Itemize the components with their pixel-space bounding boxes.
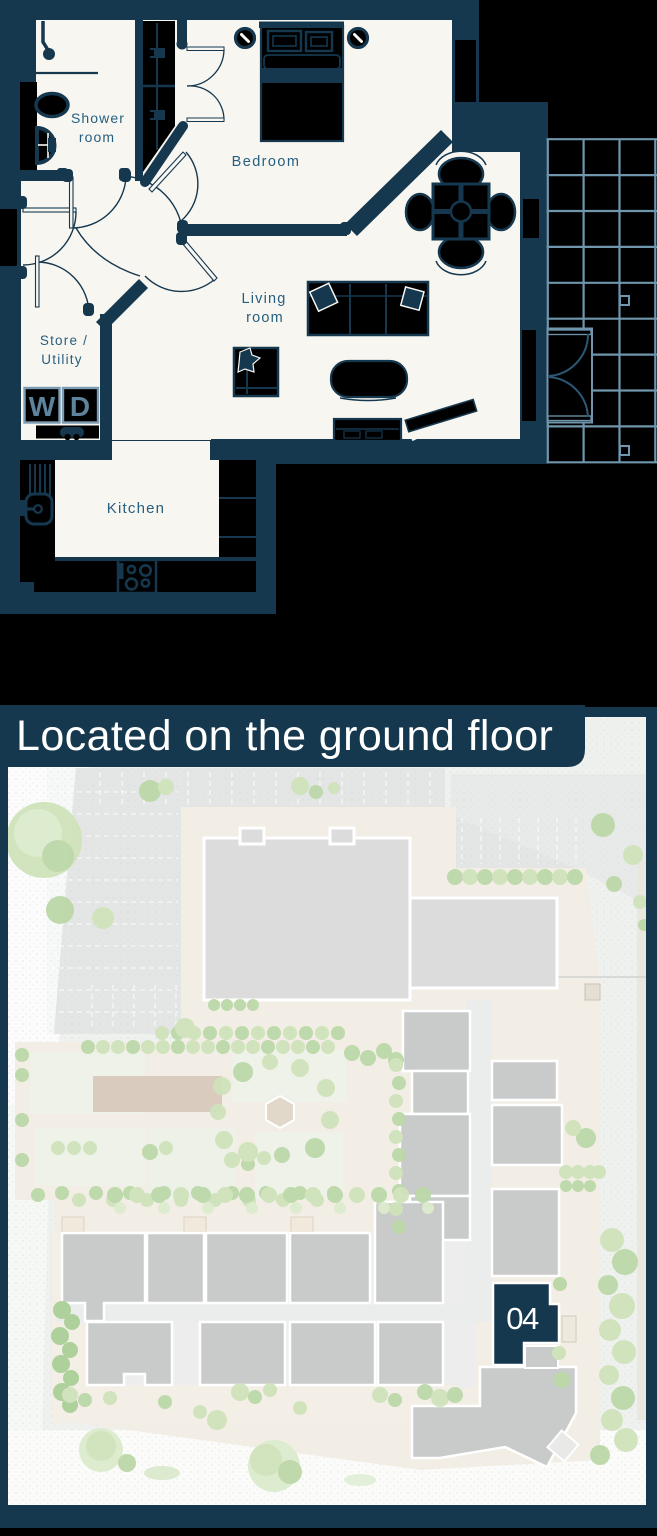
svg-text:04: 04	[506, 1301, 539, 1336]
svg-text:Bedroom: Bedroom	[232, 154, 301, 170]
svg-text:room: room	[246, 310, 284, 326]
svg-text:D: D	[70, 391, 90, 422]
svg-text:room: room	[79, 129, 115, 145]
svg-text:Shower: Shower	[71, 110, 125, 126]
svg-text:Store /: Store /	[40, 333, 88, 348]
svg-text:Living: Living	[241, 291, 286, 307]
svg-text:Utility: Utility	[41, 352, 82, 367]
svg-text:Located on the ground floor: Located on the ground floor	[16, 712, 553, 760]
svg-text:Kitchen: Kitchen	[107, 500, 165, 517]
svg-text:W: W	[29, 391, 56, 422]
